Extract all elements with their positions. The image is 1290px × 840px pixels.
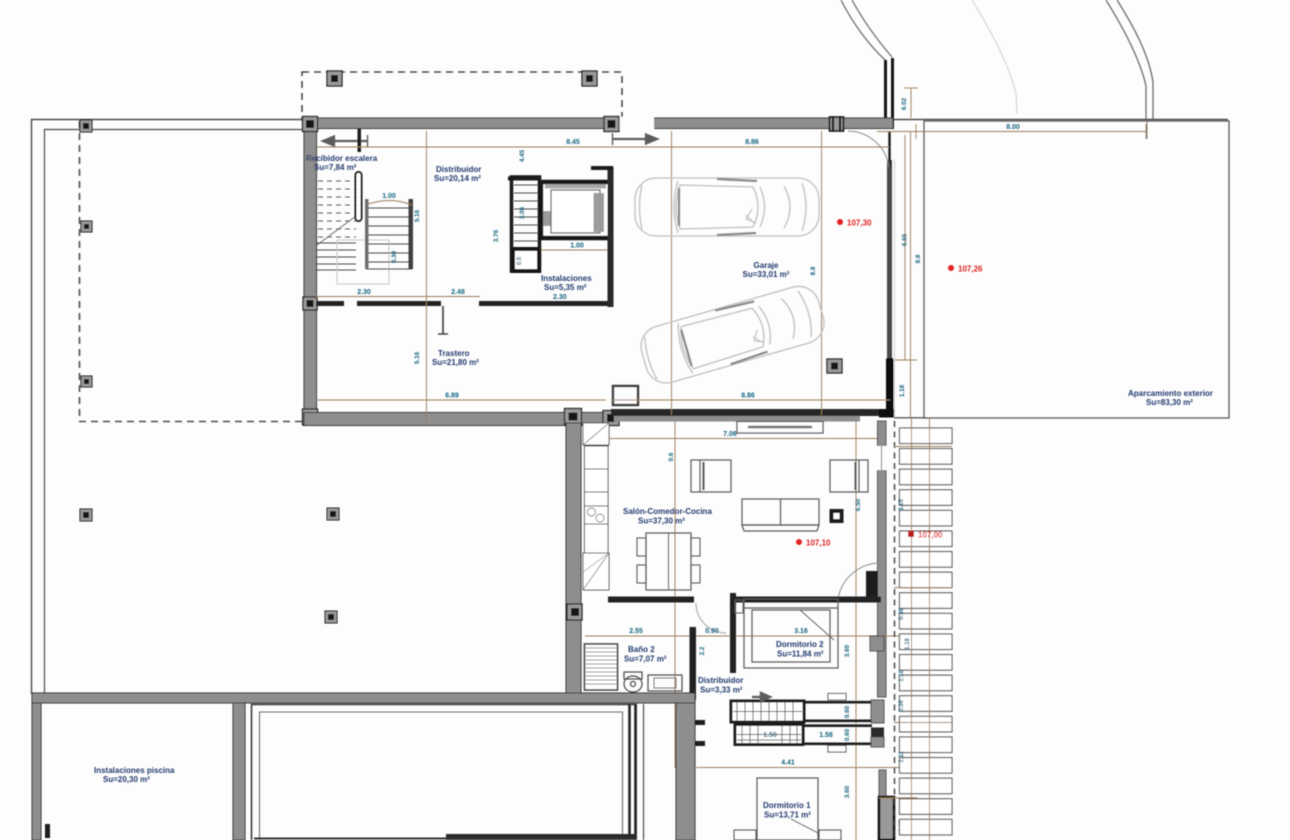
svg-text:3.06: 3.06	[519, 206, 526, 219]
svg-text:Garaje: Garaje	[754, 261, 779, 270]
svg-text:1.10: 1.10	[899, 670, 905, 682]
svg-text:8.86: 8.86	[741, 393, 755, 400]
svg-text:4.41: 4.41	[781, 760, 795, 767]
svg-text:1.18: 1.18	[899, 384, 906, 397]
svg-text:3.76: 3.76	[493, 229, 500, 242]
svg-text:1.00: 1.00	[570, 243, 584, 250]
svg-text:3.60: 3.60	[844, 785, 851, 798]
svg-text:Su=11,84 m²: Su=11,84 m²	[777, 650, 824, 659]
svg-text:6.89: 6.89	[445, 393, 459, 400]
svg-text:5.16: 5.16	[414, 351, 421, 364]
svg-text:2.48: 2.48	[451, 289, 465, 296]
svg-text:Trastero: Trastero	[438, 349, 470, 358]
svg-text:3.15: 3.15	[899, 499, 905, 511]
svg-text:1.50: 1.50	[763, 732, 777, 739]
svg-text:107,10: 107,10	[806, 539, 831, 548]
svg-text:Dormitorio 2: Dormitorio 2	[776, 640, 824, 649]
svg-text:Su=37,30 m²: Su=37,30 m²	[638, 517, 685, 526]
svg-text:1.58: 1.58	[819, 732, 833, 739]
svg-text:2.2: 2.2	[699, 646, 706, 655]
svg-text:Su=20,30 m²: Su=20,30 m²	[103, 775, 150, 784]
svg-text:6.65: 6.65	[902, 233, 909, 246]
svg-text:4.45: 4.45	[519, 149, 526, 162]
svg-text:0.36: 0.36	[899, 608, 905, 620]
svg-text:5.16: 5.16	[414, 209, 421, 222]
svg-text:8.8: 8.8	[810, 266, 817, 275]
svg-text:8.45: 8.45	[566, 139, 580, 146]
svg-text:Instalaciones: Instalaciones	[541, 274, 592, 283]
svg-text:107,26: 107,26	[958, 265, 983, 274]
svg-text:Su=33,01 m²: Su=33,01 m²	[743, 270, 790, 279]
svg-text:Su=21,80 m²: Su=21,80 m²	[432, 358, 479, 367]
svg-text:Su=7,07 m²: Su=7,07 m²	[624, 655, 667, 664]
svg-text:1.00: 1.00	[382, 193, 396, 200]
svg-text:Recibidor escalera: Recibidor escalera	[306, 154, 378, 163]
svg-text:Salón-Comedor-Cocina: Salón-Comedor-Cocina	[623, 507, 712, 516]
svg-text:Baño 2: Baño 2	[628, 645, 655, 654]
svg-text:Su=5,35 m²: Su=5,35 m²	[544, 283, 587, 292]
svg-text:Su=7,84 m²: Su=7,84 m²	[314, 163, 357, 172]
svg-text:Su=3,33 m²: Su=3,33 m²	[700, 686, 743, 695]
svg-text:2.30: 2.30	[553, 294, 567, 301]
svg-text:107,00: 107,00	[918, 531, 943, 540]
svg-text:3.16: 3.16	[794, 628, 808, 635]
svg-text:2.30: 2.30	[357, 289, 371, 296]
svg-text:8.86: 8.86	[745, 139, 759, 146]
svg-text:Instalaciones piscina: Instalaciones piscina	[94, 766, 175, 775]
svg-text:8.8: 8.8	[915, 254, 922, 263]
svg-text:8.00: 8.00	[1006, 124, 1020, 131]
svg-text:Su=83,30 m²: Su=83,30 m²	[1146, 398, 1193, 407]
svg-text:0.5: 0.5	[517, 256, 523, 265]
svg-text:1.11: 1.11	[899, 751, 905, 763]
svg-text:0.30: 0.30	[391, 250, 398, 263]
svg-text:Distribuidor: Distribuidor	[698, 676, 743, 685]
svg-text:2.55: 2.55	[629, 628, 643, 635]
svg-text:Dormitorio 1: Dormitorio 1	[763, 801, 811, 810]
svg-text:1.18: 1.18	[905, 638, 911, 650]
svg-text:107,30: 107,30	[847, 219, 872, 228]
svg-text:0.90: 0.90	[705, 628, 719, 635]
svg-text:0.60: 0.60	[844, 728, 851, 741]
svg-text:3.60: 3.60	[844, 644, 851, 657]
svg-text:6.50: 6.50	[855, 498, 862, 511]
svg-text:Distribuidor: Distribuidor	[436, 165, 481, 174]
svg-text:0.36: 0.36	[899, 700, 905, 712]
svg-text:Aparcamiento exterior: Aparcamiento exterior	[1128, 389, 1213, 398]
svg-text:7.06: 7.06	[723, 431, 737, 438]
svg-text:6.02: 6.02	[901, 97, 908, 110]
svg-text:0.6: 0.6	[668, 452, 675, 461]
svg-text:Su=13,71 m²: Su=13,71 m²	[764, 811, 811, 820]
svg-text:Su=20,14 m²: Su=20,14 m²	[434, 174, 481, 183]
svg-text:0.60: 0.60	[844, 705, 851, 718]
